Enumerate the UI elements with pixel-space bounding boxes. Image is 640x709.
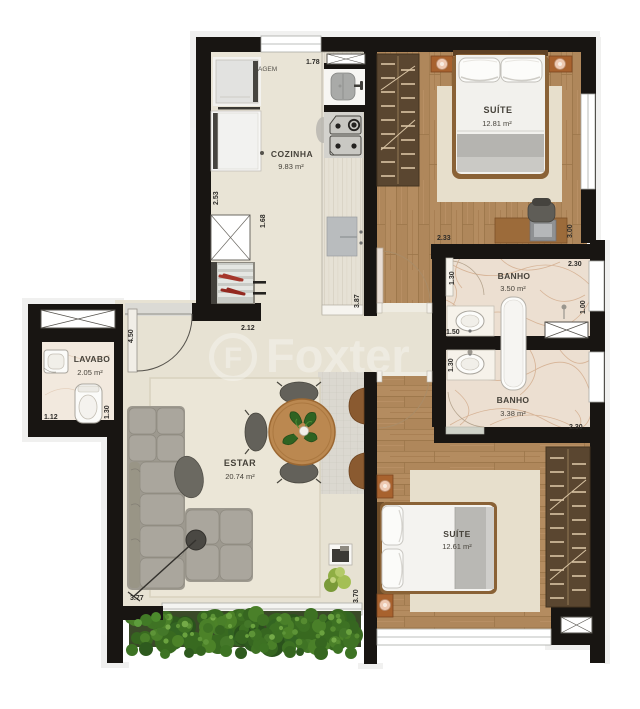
- svg-text:ESTAR: ESTAR: [224, 458, 256, 468]
- svg-text:1.50: 1.50: [446, 329, 460, 336]
- svg-text:2.53: 2.53: [213, 191, 220, 205]
- svg-text:BANHO: BANHO: [498, 271, 531, 281]
- svg-text:1.68: 1.68: [260, 214, 267, 228]
- svg-text:3.70: 3.70: [353, 589, 360, 603]
- svg-text:12.61 m²: 12.61 m²: [442, 542, 472, 551]
- svg-text:9.83 m²: 9.83 m²: [278, 162, 304, 171]
- svg-text:1.00: 1.00: [580, 300, 587, 314]
- svg-text:AGEM: AGEM: [258, 66, 277, 73]
- svg-text:1.12: 1.12: [44, 414, 58, 421]
- svg-text:1.30: 1.30: [448, 358, 455, 372]
- svg-text:SUÍTE: SUÍTE: [483, 105, 512, 115]
- svg-text:2.30: 2.30: [568, 261, 582, 268]
- svg-text:3.77: 3.77: [130, 595, 144, 602]
- svg-text:2.33: 2.33: [437, 235, 451, 242]
- svg-text:LAVABO: LAVABO: [74, 354, 111, 364]
- svg-text:3.38 m²: 3.38 m²: [500, 409, 526, 418]
- svg-text:12.81 m²: 12.81 m²: [482, 119, 512, 128]
- svg-text:2.05 m²: 2.05 m²: [77, 368, 103, 377]
- svg-text:2.12: 2.12: [241, 325, 255, 332]
- svg-text:F: F: [224, 342, 242, 375]
- svg-text:2.30: 2.30: [569, 424, 583, 431]
- svg-text:BANHO: BANHO: [497, 395, 530, 405]
- svg-text:Foxter: Foxter: [266, 329, 410, 382]
- svg-text:SUÍTE: SUÍTE: [443, 529, 471, 539]
- svg-text:3.87: 3.87: [354, 294, 361, 308]
- svg-text:4.50: 4.50: [128, 329, 135, 343]
- svg-text:3.00: 3.00: [567, 224, 574, 238]
- svg-text:1.78: 1.78: [306, 59, 320, 66]
- svg-text:1.30: 1.30: [104, 405, 111, 419]
- svg-text:20.74 m²: 20.74 m²: [225, 472, 255, 481]
- svg-text:COZINHA: COZINHA: [271, 149, 313, 159]
- svg-text:1.30: 1.30: [449, 271, 456, 285]
- svg-text:3.50 m²: 3.50 m²: [500, 284, 526, 293]
